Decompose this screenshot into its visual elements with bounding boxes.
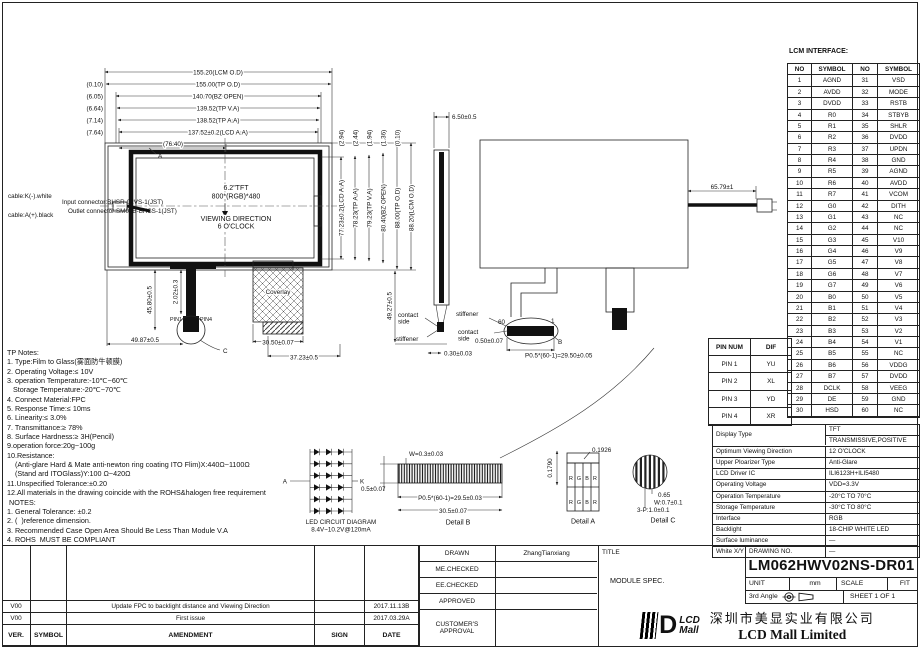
pin-header-cell: PIN NUM: [709, 339, 751, 356]
lcm-cell: 15: [788, 235, 812, 246]
lcm-cell: 50: [853, 292, 878, 303]
note-line: 3. operation Temperature:-10℃~60℃: [7, 376, 337, 385]
led-diode: [338, 496, 344, 502]
lcm-cell: R2: [812, 132, 853, 143]
spec-key: Interface: [713, 514, 826, 524]
unit-label: UNIT: [745, 577, 790, 590]
panel-resolution-label: 800*(RGB)*480: [212, 194, 261, 201]
spec-row: Optimum Viewing Direction12 O'CLOCK: [713, 447, 919, 458]
lcm-cell: DITH: [878, 201, 919, 212]
lcm-cell: 23: [788, 326, 812, 337]
drawing-number: LM062HWV02NS-DR01: [745, 557, 918, 574]
title-cell: TITLE MODULE SPEC.: [598, 546, 746, 603]
subpixel-r1b: R: [593, 476, 597, 482]
lcm-cell: G4: [812, 246, 853, 257]
lcm-cell: 37: [853, 144, 878, 155]
note-line: 8. Surface Hardness:≥ 3H(Pencil): [7, 432, 337, 441]
offset-294: (2.94): [339, 130, 346, 146]
led-diode: [338, 449, 344, 455]
led-diode: [338, 472, 344, 478]
lcm-cell: DE: [812, 394, 853, 405]
dim-tail-drop: 45.80±0.5: [147, 286, 154, 314]
lcm-cell: R1: [812, 121, 853, 132]
lcm-cell: V4: [878, 303, 919, 314]
dim-tp-od-v: 88.00(TP O.D): [395, 188, 402, 229]
rev-amendment: Update FPC to backlight distance and Vie…: [67, 601, 315, 613]
spec-value: 18-CHIP WHITE LED: [826, 525, 919, 535]
lcm-cell: 4: [788, 110, 812, 121]
lcm-cell: 18: [788, 269, 812, 280]
lcm-cell: V3: [878, 314, 919, 325]
approval-table: DRAWN ZhangTianxiang ME.CHECKED EE.CHECK…: [419, 545, 599, 647]
spec-value: RGB: [826, 514, 919, 524]
detail-b-pitch: P0.5*(60-1)=29.5±0.03: [418, 495, 482, 502]
note-line: 4. ROHS MUST BE COMPLIANT: [7, 535, 337, 544]
note-line: (Stand ard ITOGlass)Y:100 Ω~420Ω: [7, 469, 337, 478]
module-spec-title: MODULE SPEC.: [610, 576, 664, 585]
angle-row: 3rd Angle SHEET 1 OF 1: [745, 590, 918, 604]
offset-010-v: (0.10): [395, 130, 402, 146]
lcm-cell: 31: [853, 75, 878, 86]
oclock-label: 6 O'CLOCK: [218, 224, 255, 231]
stiffener-label-1: stiffener: [396, 336, 418, 343]
note-line: 1. General Tolerance: ±0.2: [7, 507, 337, 516]
lcm-cell: NC: [878, 405, 919, 416]
title-label: TITLE: [602, 549, 620, 556]
rev-date: 2017.03.29A: [365, 613, 419, 625]
lcm-cell: 41: [853, 189, 878, 200]
lcm-cell: 32: [853, 87, 878, 98]
dim-lcm-od-v: 88.20(LCM O.D): [409, 185, 416, 231]
lcm-cell: B3: [812, 326, 853, 337]
spec-key: Display Type: [713, 425, 826, 445]
lcm-cell: 60: [853, 405, 878, 416]
dim-tp-aa-v: 78.23(TP A.A): [353, 188, 360, 227]
lcm-cell: V9: [878, 246, 919, 257]
lcm-cell: 17: [788, 257, 812, 268]
dim-tp-va-v: 79.23(TP V.A): [367, 188, 374, 227]
lcm-interface-title: LCM INTERFACE:: [789, 48, 848, 55]
lcm-header-cell: SYMBOL: [812, 64, 853, 75]
lcm-cell: 7: [788, 144, 812, 155]
lcm-cell: B4: [812, 337, 853, 348]
dim-thickness: 6.50±0.5: [452, 114, 477, 121]
lcm-cell: DCLK: [812, 383, 853, 394]
note-line: 5. Response Time:≤ 10ms: [7, 404, 337, 413]
spec-row-display-type: Display Type TFT TRANSMISSIVE,POSITIVE: [713, 425, 919, 447]
led-diode: [338, 484, 344, 490]
detail-c-d2: W:0.7±0.1: [654, 500, 683, 507]
detail-b-w: W=0.3±0.03: [409, 451, 444, 458]
lcm-cell: RSTB: [878, 98, 919, 109]
detail-b: W=0.3±0.03 0.5±0.07 P0.5*(60-1)=29.5±0.0…: [361, 348, 654, 527]
lcm-cell: R5: [812, 166, 853, 177]
dim-tail-offset: 49.87±0.5: [131, 337, 159, 344]
lcm-cell: G3: [812, 235, 853, 246]
drawing-no-cell: DRAWING NO. LM062HWV02NS-DR01: [745, 546, 918, 578]
logo-bars-icon: [640, 612, 659, 639]
dim-tp-va-h: 139.52(TP V.A): [197, 105, 240, 112]
rev-sign: [315, 601, 365, 613]
right-dimensions: 77.23±0.2(LCD A.A) 78.23(TP A.A) 79.23(T…: [321, 130, 447, 344]
lcm-cell: 47: [853, 257, 878, 268]
side-fpc-tip: [437, 322, 444, 332]
lcm-cell: 12: [788, 201, 812, 212]
subpixel-b2: B: [585, 500, 589, 506]
logo-text-top: LCD: [679, 616, 700, 626]
lcm-cell: VCOM: [878, 189, 919, 200]
lcm-cell: R0: [812, 110, 853, 121]
dim-7640: (76.40): [163, 141, 183, 148]
lcm-header-cell: NO: [788, 64, 812, 75]
lcm-cell: V7: [878, 269, 919, 280]
lcm-cell: 43: [853, 212, 878, 223]
top-dimensions: 155.20(LCM O.D) 155.00(TP O.D) 140.70(BZ…: [87, 68, 332, 152]
lcm-cell: 16: [788, 246, 812, 257]
pin-cell: PIN 1: [709, 356, 751, 373]
spec-value: TFT: [826, 425, 919, 436]
subpixel-r2b: R: [593, 500, 597, 506]
contact-side-label-2b: side: [458, 336, 470, 343]
lcm-cell: 40: [853, 178, 878, 189]
lcm-cell: R3: [812, 144, 853, 155]
spec-value: ILI6123H+ILI5480: [826, 469, 919, 479]
customer-approval-label: CUSTOMER'S APPROVAL: [419, 610, 496, 647]
drawing-no-label: DRAWING NO.: [749, 548, 792, 555]
company-bar: D LCD Mall 深圳市美显实业有限公司 LCD Mall Limited: [598, 603, 918, 648]
spec-row: Operation Temperature-20°C TO 70°C: [713, 492, 919, 503]
lcm-cell: R7: [812, 189, 853, 200]
lcm-cell: DVDD: [878, 132, 919, 143]
subpixel-g1: G: [577, 476, 581, 482]
spec-value: VDD=3.3V: [826, 480, 919, 490]
lcm-cell: 59: [853, 394, 878, 405]
rev-ver: V00: [2, 613, 31, 625]
tp-notes: TP Notes:1. Type:Film to Glass(雾面防牛顿膜)2.…: [7, 348, 337, 544]
title-block: TITLE MODULE SPEC. DRAWING NO. LM062HWV0…: [598, 545, 918, 648]
pin-cell: XR: [751, 408, 791, 425]
company-name-en: LCD Mall Limited: [738, 627, 846, 643]
lcm-cell: 3: [788, 98, 812, 109]
lcm-cell: DVDD: [812, 98, 853, 109]
lcm-cell: G2: [812, 223, 853, 234]
lcm-cell: 55: [853, 348, 878, 359]
spec-row: Storage Temperature-30°C TO 80°C: [713, 503, 919, 514]
dim-tp-aa-h: 138.52(TP A.A): [197, 117, 240, 124]
note-line: 12.All materials in the drawing coincide…: [7, 488, 337, 497]
stiffener-label-2: stiffener: [456, 311, 478, 318]
detail-c-caption: Detail C: [651, 518, 676, 525]
dim-tail-len: 2.02±0.3: [173, 279, 180, 304]
spec-value: -20°C TO 70°C: [826, 492, 919, 502]
offset-664: (6.64): [87, 105, 103, 112]
subpixel-b1: B: [585, 476, 589, 482]
dim-lcm-od-h: 155.20(LCM O.D): [193, 69, 243, 76]
lcm-cell: DVDD: [878, 371, 919, 382]
lcm-cell: 46: [853, 246, 878, 257]
lcm-cell: G0: [812, 201, 853, 212]
lcm-cell: V1: [878, 337, 919, 348]
spec-row: InterfaceRGB: [713, 514, 919, 525]
coverlay-label: Coverlay: [266, 289, 292, 296]
lcm-cell: UPDN: [878, 144, 919, 155]
note-line: 2. Operating Voltage:≤ 10V: [7, 367, 337, 376]
drawn-value: ZhangTianxiang: [496, 546, 597, 562]
spec-key: Backlight: [713, 525, 826, 535]
unit-value: mm: [790, 577, 837, 590]
lcm-cell: AVDD: [878, 178, 919, 189]
offset-244: (2.44): [353, 130, 360, 146]
lcm-cell: B2: [812, 314, 853, 325]
detail-b-total: 30.5±0.07: [439, 508, 467, 515]
subpixel-r2: R: [569, 500, 573, 506]
pin-cell: PIN 4: [709, 408, 751, 425]
lcm-cell: STBYB: [878, 110, 919, 121]
note-line: NOTES:: [7, 498, 337, 507]
offset-605: (6.05): [87, 93, 103, 100]
note-line: 11.Unspecified Tolerance:±0.20: [7, 479, 337, 488]
dim-tp-od-h: 155.00(TP O.D): [196, 81, 240, 88]
spec-row: LCD Driver ICILI6123H+ILI5480: [713, 469, 919, 480]
led-diode: [338, 461, 344, 467]
pin4-label: PIN4: [200, 317, 212, 323]
third-angle-projection-icon: [782, 591, 816, 603]
lcm-cell: 34: [853, 110, 878, 121]
lcm-cell: R6: [812, 178, 853, 189]
detail-b-t: 0.5±0.07: [361, 486, 386, 493]
rev-date: 2017.11.13B: [365, 601, 419, 613]
dim-fpc-pitch: P0.5*(60-1)=29.50±0.05: [525, 353, 593, 360]
lcm-cell: B0: [812, 292, 853, 303]
lcm-cell: V2: [878, 326, 919, 337]
lcm-cell: 5: [788, 121, 812, 132]
rev-amendment: First issue: [67, 613, 315, 625]
lcm-cell: 51: [853, 303, 878, 314]
lcm-cell: 11: [788, 189, 812, 200]
backlight-connector: [170, 262, 216, 269]
lcm-cell: 21: [788, 303, 812, 314]
lcm-cell: HSD: [812, 405, 853, 416]
lcm-cell: SHLR: [878, 121, 919, 132]
lcm-cell: GND: [878, 155, 919, 166]
pin-cell: PIN 3: [709, 391, 751, 408]
lcdmall-logo: D LCD Mall: [641, 612, 700, 639]
lcm-cell: VEEG: [878, 383, 919, 394]
offset-764: (7.64): [87, 129, 103, 136]
led-diode: [338, 508, 344, 514]
third-angle-label: 3rd Angle: [749, 593, 778, 600]
revision-table: V00 Update FPC to backlight distance and…: [2, 545, 420, 646]
lcm-cell: R4: [812, 155, 853, 166]
lcm-cell: B5: [812, 348, 853, 359]
detail-a-caption: Detail A: [571, 519, 595, 526]
fpc-contact-bar: [507, 326, 554, 336]
dim-fpc-thickness: 0.50±0.07: [475, 338, 503, 345]
spec-key: LCD Driver IC: [713, 469, 826, 479]
rev-ver: V00: [2, 601, 31, 613]
lcm-cell: 8: [788, 155, 812, 166]
lcm-cell: 22: [788, 314, 812, 325]
sheet-label: SHEET 1 OF 1: [844, 590, 918, 603]
detail-c-d3: 3-P:1.0±0.1: [637, 507, 670, 514]
spec-key: Upper Ploarizer Type: [713, 458, 826, 468]
lcm-cell: G7: [812, 280, 853, 291]
lcm-cell: VDDG: [878, 360, 919, 371]
lcm-cell: VSD: [878, 75, 919, 86]
lcm-cell: 33: [853, 98, 878, 109]
pin-cell: YD: [751, 391, 791, 408]
spec-key: Operating Voltage: [713, 480, 826, 490]
cable-a-label: cable:A(+).black: [8, 212, 54, 219]
rev-sign: [315, 613, 365, 625]
offset-194: (1.94): [367, 130, 374, 146]
lcm-cell: 49: [853, 280, 878, 291]
detail-c: 0.65 W:0.7±0.1 3-P:1.0±0.1 Detail C: [633, 455, 683, 525]
rev-header-sign: SIGN: [315, 625, 365, 645]
note-line: 4. Connect Material:FPC: [7, 395, 337, 404]
balloon-b-label: B: [558, 339, 562, 346]
side-view: 6.50±0.5 contact side stiffener 0.30±0.0…: [396, 112, 477, 358]
ee-checked-label: EE.CHECKED: [419, 578, 496, 594]
note-line: 2. ( )reference dimension.: [7, 516, 337, 525]
lcm-cell: 45: [853, 235, 878, 246]
cable-end-connector: [757, 199, 772, 212]
lcm-cell: B6: [812, 360, 853, 371]
lcm-header-cell: SYMBOL: [878, 64, 919, 75]
spec-value: 12 O'CLOCK: [826, 447, 919, 457]
rev-header-date: DATE: [365, 625, 419, 645]
dim-lcd-aa-h: 137.52±0.2(LCD A.A): [188, 129, 248, 136]
note-line: Storage Temperature:-20℃~70℃: [7, 385, 337, 394]
offset-010: (0.10): [87, 81, 103, 88]
logo-d-icon: D: [659, 613, 677, 638]
panel-size-label: 6.2"TFT: [223, 185, 249, 192]
cable-k-label: cable:K(-).white: [8, 193, 52, 200]
lcm-cell: MODE: [878, 87, 919, 98]
note-line: 7. Transmittance:≥ 78%: [7, 423, 337, 432]
detail-b-caption: Detail B: [446, 520, 471, 527]
spec-value: TRANSMISSIVE,POSITIVE: [826, 436, 919, 446]
lcm-cell: 58: [853, 383, 878, 394]
rev-symbol: [31, 613, 67, 625]
note-line: 9.operation force:20g~100g: [7, 441, 337, 450]
spec-value: Anti-Glare: [826, 458, 919, 468]
lcm-header-cell: NO: [853, 64, 878, 75]
pin1-label-back: 1: [551, 318, 555, 325]
back-fpc-tail: [606, 268, 634, 312]
note-line: TP Notes:: [7, 348, 337, 357]
pin-header-cell: DIF: [751, 339, 791, 356]
logo-text-bottom: Mall: [679, 626, 700, 636]
led-cathode-label: K: [360, 479, 365, 486]
unit-row: UNIT mm SCALE FIT: [745, 577, 918, 591]
lcm-cell: GND: [878, 394, 919, 405]
lcm-cell: AGND: [878, 166, 919, 177]
dim-right-drop: 49.27±0.5: [387, 292, 394, 320]
detail-a-w: 0.1926: [592, 447, 612, 454]
dim-bz-open-h: 140.70(BZ OPEN): [192, 93, 243, 100]
spec-value: -30°C TO 80°C: [826, 503, 919, 513]
lcm-cell: 56: [853, 360, 878, 371]
spec-row: Upper Ploarizer TypeAnti-Glare: [713, 458, 919, 469]
subpixel-r1: R: [569, 476, 573, 482]
dim-coverlay-w: 30.50±0.07: [262, 340, 294, 347]
lcm-cell: AGND: [812, 75, 853, 86]
lcm-cell: V5: [878, 292, 919, 303]
lcm-cell: 54: [853, 337, 878, 348]
note-line: 3. Recommended Case Open Area Should Be …: [7, 526, 337, 535]
contact-side-label-1b: side: [398, 319, 410, 326]
lcm-cell: 57: [853, 371, 878, 382]
note-line: 10.Resistance:: [7, 451, 337, 460]
lcm-cell: 39: [853, 166, 878, 177]
scale-value: FIT: [888, 577, 918, 590]
viewing-direction-label: VIEWING DIRECTION: [201, 216, 272, 223]
subpixel-g2: G: [577, 500, 581, 506]
offset-714: (7.14): [87, 117, 103, 124]
spec-table: Display Type TFT TRANSMISSIVE,POSITIVE O…: [712, 424, 920, 558]
lcm-cell: NC: [878, 223, 919, 234]
lcm-cell: 10: [788, 178, 812, 189]
lcm-cell: 48: [853, 269, 878, 280]
note-line: 6. Linearity:≤ 3.0%: [7, 413, 337, 422]
detail-a-h: 0.1790: [547, 458, 554, 478]
lcm-cell: B1: [812, 303, 853, 314]
spec-row: Operating VoltageVDD=3.3V: [713, 480, 919, 491]
detail-c-d1: 0.65: [658, 492, 671, 499]
lcm-cell: G5: [812, 257, 853, 268]
lcm-cell: AVDD: [812, 87, 853, 98]
lcm-cell: 14: [788, 223, 812, 234]
drawing-sheet: A 6.2"TFT 800*(RGB)*480 VIEWING DIRECTIO…: [0, 0, 920, 649]
spec-key: Operation Temperature: [713, 492, 826, 502]
dim-lcd-aa-v: 77.23±0.2(LCD A.A): [339, 180, 346, 236]
lcm-cell: V10: [878, 235, 919, 246]
lcm-interface-table: NOSYMBOLNOSYMBOL1AGND31VSD2AVDD32MODE3DV…: [787, 63, 920, 418]
note-line: (Anti-glare Hard & Mate anti-newton ring…: [7, 460, 337, 469]
lcm-cell: 9: [788, 166, 812, 177]
lcm-cell: NC: [878, 212, 919, 223]
outlet-connector-label: Outlet connector:SM02B-BHSS-1(JST): [68, 208, 177, 215]
scale-label: SCALE: [837, 577, 888, 590]
lcm-cell: V6: [878, 280, 919, 291]
lcm-cell: 19: [788, 280, 812, 291]
lcm-cell: V8: [878, 257, 919, 268]
lcm-cell: 2: [788, 87, 812, 98]
dim-cable-length: 65.79±1: [711, 184, 734, 191]
rev-symbol: [31, 601, 67, 613]
lcm-cell: 20: [788, 292, 812, 303]
company-name-cn: 深圳市美显实业有限公司: [710, 608, 875, 627]
spec-row: Backlight18-CHIP WHITE LED: [713, 525, 919, 536]
dim-tp-thickness: 0.30±0.03: [444, 351, 472, 358]
spec-key: Storage Temperature: [713, 503, 826, 513]
lcm-cell: 42: [853, 201, 878, 212]
lcm-cell: 6: [788, 132, 812, 143]
dim-bz-open-v: 80.40(BZ OPEN): [381, 184, 388, 232]
lcm-cell: 38: [853, 155, 878, 166]
rev-header-ver: VER.: [2, 625, 31, 645]
lcm-cell: G1: [812, 212, 853, 223]
lcm-cell: 52: [853, 314, 878, 325]
lcm-cell: 36: [853, 132, 878, 143]
lcm-cell: 35: [853, 121, 878, 132]
pin1-label: PIN1: [170, 317, 182, 323]
lcm-cell: 53: [853, 326, 878, 337]
lcm-cell: NC: [878, 348, 919, 359]
me-checked-label: ME.CHECKED: [419, 562, 496, 578]
pin-cell: PIN 2: [709, 373, 751, 390]
